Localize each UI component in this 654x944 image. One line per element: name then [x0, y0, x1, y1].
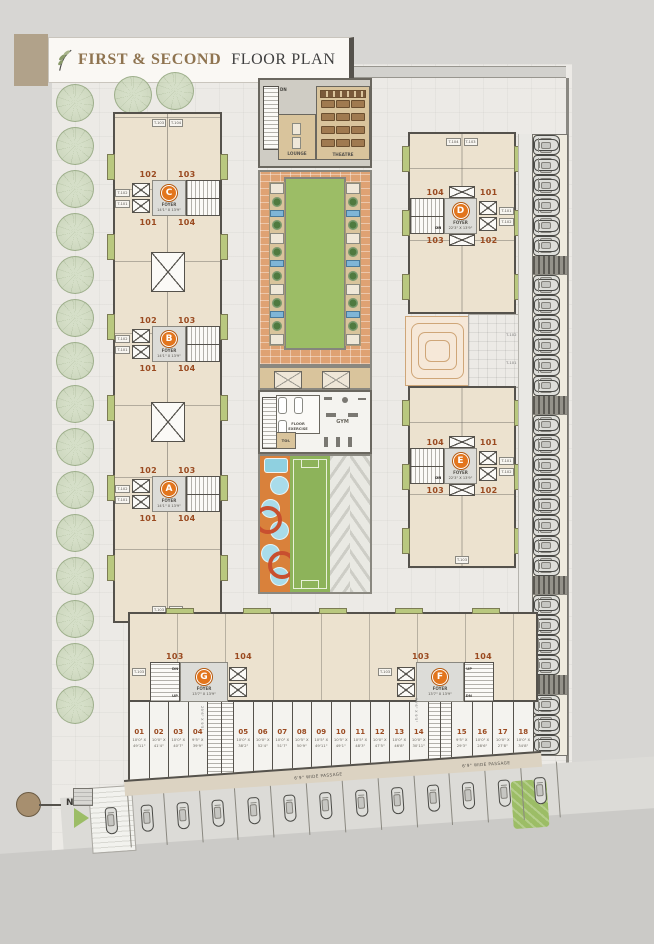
parking-stall — [533, 455, 560, 475]
tree-icon — [56, 514, 94, 552]
balcony — [402, 146, 410, 172]
tree-icon — [56, 385, 94, 423]
car-icon — [534, 279, 559, 291]
foyer: C FOYER 14'1" X 13'9" UP DN — [152, 180, 186, 216]
lift-column — [130, 476, 152, 512]
toilet-tag: T-103 — [378, 668, 392, 676]
foyer-label: FOYER — [162, 202, 177, 207]
shop-dimension: 9'5" X — [456, 737, 467, 742]
seat-icon — [351, 126, 365, 134]
toilet-tag: T-102 — [115, 485, 129, 493]
shop-dimension: 10'0" X — [256, 737, 270, 742]
floor-exercise-label: FLOOR EXERCISE — [277, 422, 319, 431]
toilet-room: TOI. — [276, 432, 296, 449]
lift-column — [477, 448, 499, 484]
tree-icon — [56, 600, 94, 638]
parking-stall — [378, 771, 418, 829]
planter-item — [346, 210, 360, 217]
shop-number: 06 — [258, 728, 268, 736]
terrace-tag: T-104 — [446, 138, 460, 146]
shop-dimension: 9'5" X — [192, 737, 203, 742]
unit-row: 101 104 — [115, 216, 220, 228]
gazebo-icon — [322, 371, 350, 389]
parking-stall — [533, 475, 560, 495]
parking-stall — [533, 236, 560, 256]
terrace-tags-top: T-104 T-103 — [410, 138, 514, 146]
planter-item — [348, 298, 358, 308]
parking-stall — [533, 135, 560, 155]
gym-area: GYM — [318, 395, 367, 449]
foyer-size: 22'3" X 13'9" — [449, 476, 473, 480]
core-middle: D FOYER 22'3" X 13'9" DN UP T-101 T-102 — [410, 198, 514, 234]
car-icon — [534, 719, 559, 731]
shop-number: 05 — [238, 728, 248, 736]
toilet-tag: T-101 — [115, 346, 129, 354]
lift-x-icon — [132, 199, 150, 213]
core-middle: E FOYER 22'3" X 13'9" DN UP T-101 T-102 — [410, 448, 514, 484]
shop-number: 03 — [173, 728, 183, 736]
balcony-column-right — [220, 154, 228, 581]
car-icon — [534, 199, 559, 211]
planter-item — [272, 247, 282, 257]
up-label: UP — [172, 693, 178, 698]
balcony-column-left — [402, 400, 410, 554]
parking-stall — [533, 556, 560, 576]
title-primary: FIRST & SECOND — [78, 51, 221, 69]
unit-row: 103 102 — [410, 234, 514, 246]
shop-dimension: 10'0" X — [171, 737, 185, 742]
tree-icon — [56, 557, 94, 595]
parking-stall — [164, 786, 204, 844]
toilet-tag: T-102 — [115, 189, 129, 197]
lift-x-icon — [229, 683, 247, 697]
parking-stall — [414, 769, 454, 827]
car-icon — [534, 439, 559, 451]
shop-number: 11 — [355, 728, 365, 736]
parking-stall — [533, 275, 560, 295]
balcony — [402, 274, 410, 300]
shop-dimension: 28'6" — [477, 743, 487, 748]
tree-icon — [56, 170, 94, 208]
planter-item — [270, 260, 284, 267]
lift-column — [477, 198, 499, 234]
unit-number: 101 — [139, 218, 157, 227]
shop-dimension: 10'0" X — [236, 737, 250, 742]
tower-badge: D — [453, 203, 469, 219]
unit-number: 104 — [426, 438, 444, 447]
car-icon — [534, 339, 559, 351]
balcony — [107, 314, 115, 340]
planter-item — [348, 271, 358, 281]
parking-stall — [533, 376, 560, 396]
parking-stall — [450, 766, 490, 824]
building-tower-E: 104 101 E FOYER 22'3" X 13'9" DN UP — [408, 386, 516, 568]
shop-number: 16 — [477, 728, 487, 736]
turf-lines — [293, 459, 327, 589]
planter-item — [346, 311, 360, 318]
parking-stall — [533, 435, 560, 455]
shop-dimension: 30'11" — [413, 743, 425, 748]
toilet-tag: T-101 — [499, 457, 513, 465]
building-tower-D: T-104 T-103 104 101 D FOYER 22'3" X 13'9… — [408, 132, 516, 314]
unit-number: 101 — [480, 188, 498, 197]
parking-stall — [521, 761, 561, 819]
trampoline-icon — [270, 476, 289, 495]
tower-badge: A — [161, 481, 177, 497]
seat-icon — [336, 113, 350, 121]
courtyard-ring — [418, 332, 456, 370]
car-icon — [390, 787, 404, 815]
unit-number: 103 — [166, 652, 184, 661]
parking-stall — [533, 355, 560, 375]
shop-dimension: 49'11" — [315, 743, 327, 748]
foyer-label: FOYER — [433, 686, 448, 691]
parking-stall — [271, 779, 311, 837]
balcony — [220, 154, 228, 180]
lift-column — [396, 662, 416, 702]
floor-exercise-room: FLOOR EXERCISE — [276, 395, 320, 434]
parking-stall — [92, 791, 132, 849]
gym-equipment-icon — [324, 397, 332, 400]
unit-row: 103 104 — [150, 650, 268, 662]
central-garden — [258, 170, 372, 366]
shop-dimension: 10'0" X — [412, 737, 426, 742]
unit-number: 104 — [178, 218, 196, 227]
parking-stall — [128, 789, 168, 847]
unit-row: 103 102 — [410, 484, 514, 496]
lawn — [284, 177, 346, 350]
passage-label: 6'9" WIDE PASSAGE — [462, 760, 511, 768]
toilet-tag: T-102 — [115, 335, 129, 343]
unit-number: 104 — [474, 652, 492, 661]
planter-item — [346, 233, 360, 244]
balcony — [107, 395, 115, 421]
lift-x-icon — [397, 667, 415, 681]
tower-core-G: 103 104 G FOYER 13'7" X 13'9" DN UP — [150, 650, 268, 702]
title-secondary: FLOOR PLAN — [231, 51, 335, 69]
balcony — [166, 608, 194, 614]
planter-item — [272, 220, 282, 230]
parking-stall — [533, 715, 560, 735]
shop-number: 01 — [134, 728, 144, 736]
car-icon — [534, 599, 559, 611]
parking-stall — [533, 155, 560, 175]
car-icon — [534, 139, 559, 151]
parking-stall — [533, 216, 560, 236]
parking-stall — [533, 195, 560, 215]
parking-stall — [533, 315, 560, 335]
terrace-tag: T-104 — [169, 119, 183, 127]
foyer-label: FOYER — [162, 348, 177, 353]
car-icon — [534, 560, 559, 572]
terrace-tags-bottom: T-103 — [410, 556, 514, 564]
tower-core-B: 102 103 T-102 T-101 B FOYER 14'1" X 13'9… — [115, 314, 220, 374]
toilet-tags: T-102 T-101 — [115, 476, 130, 512]
tree-icon — [56, 127, 94, 165]
planter-item — [270, 210, 284, 217]
shop-dimension: 29'3" — [457, 743, 467, 748]
unit-number: 102 — [139, 170, 157, 179]
lift-x-icon — [449, 436, 475, 448]
unit-number: 101 — [480, 438, 498, 447]
parking-stall — [485, 764, 525, 822]
core-middle: T-102 T-101 C FOYER 14'1" X 13'9" UP DN — [115, 180, 220, 216]
tree-icon — [56, 299, 94, 337]
planter-item — [270, 284, 284, 295]
seat-icon — [321, 139, 335, 147]
unit-number: 102 — [139, 466, 157, 475]
table-icon — [292, 137, 301, 149]
title-accent-block — [14, 34, 48, 86]
shop-number: 07 — [277, 728, 287, 736]
tower-core-A: 102 103 T-102 T-101 A FOYER 14'1" X 13'9… — [115, 464, 220, 524]
shop-dimension: 10'5" X — [353, 737, 367, 742]
tower-badge: F — [432, 669, 448, 685]
shop-number: 14 — [414, 728, 424, 736]
planter-column-left — [269, 182, 285, 346]
shop-dimension: 10'5" X — [334, 737, 348, 742]
lift-x-icon — [132, 495, 150, 509]
car-icon — [176, 802, 190, 830]
parking-stall — [533, 536, 560, 556]
seat-icon — [321, 126, 335, 134]
unit-row: 102 103 — [115, 314, 220, 326]
balcony — [220, 234, 228, 260]
unit-number: 104 — [178, 364, 196, 373]
goal-box-icon — [301, 580, 319, 589]
parking-stall — [533, 396, 567, 415]
terrace-tag: T-103 — [455, 556, 469, 564]
car-icon — [534, 380, 559, 392]
planter-item — [272, 321, 282, 331]
tree-icon — [56, 471, 94, 509]
tree-icon — [56, 643, 94, 681]
seat-icon — [351, 113, 365, 121]
car-icon — [534, 499, 559, 511]
balcony-row-top — [142, 608, 524, 614]
shop-number: 10 — [336, 728, 346, 736]
foyer-size: 14'1" X 13'9" — [157, 208, 181, 212]
parking-stall — [533, 495, 560, 515]
car-icon — [534, 459, 559, 471]
chevron-left — [330, 456, 350, 592]
shop-dimension: 38'2" — [238, 743, 248, 748]
shop-number: 13 — [394, 728, 404, 736]
unit-number: 103 — [178, 466, 196, 475]
unit-row: 104 101 — [410, 186, 514, 198]
courtyard-ring — [411, 323, 463, 378]
shop-number: 08 — [297, 728, 307, 736]
tree-icon — [156, 72, 194, 110]
lift-x-icon — [151, 402, 185, 442]
gym-equipment-icon — [348, 413, 358, 417]
car-icon — [212, 799, 226, 827]
shop-dimension: 46'8" — [394, 743, 404, 748]
gym-staircase — [262, 397, 277, 449]
core-middle: F FOYER 13'7" X 13'9" UP DN — [396, 662, 508, 702]
tree-icon — [56, 342, 94, 380]
lift-x-icon — [397, 683, 415, 697]
parking-stall — [307, 776, 347, 834]
lift-x-icon — [132, 183, 150, 197]
courtyard-ring — [425, 340, 449, 362]
planter-item — [272, 298, 282, 308]
lift-shaft-icon — [151, 402, 185, 442]
shop-dimension: 51'7" — [277, 743, 287, 748]
tree-icon — [56, 686, 94, 724]
shop-number: 09 — [316, 728, 326, 736]
pergola-deck — [258, 366, 372, 390]
lift-x-icon — [151, 252, 185, 292]
shop-dimension: 49'1" — [336, 743, 346, 748]
treadmill-icon — [336, 437, 340, 447]
balcony — [107, 555, 115, 581]
car-icon — [534, 159, 559, 171]
planter-item — [270, 233, 284, 244]
shop-dimension: 10'0" X — [516, 737, 530, 742]
foyer-label: FOYER — [453, 470, 468, 475]
shop-dimension: 10'0" X — [496, 737, 510, 742]
seat-icon — [336, 139, 350, 147]
core-middle: T-102 T-101 A FOYER 14'1" X 13'9" UP DN — [115, 476, 220, 512]
shop-dimension: 10'0" X — [152, 737, 166, 742]
balcony — [395, 608, 423, 614]
planter-item — [348, 247, 358, 257]
lounge-label: LOUNGE — [279, 151, 315, 156]
foyer-size: 14'1" X 13'9" — [157, 504, 181, 508]
core-middle: T-102 T-101 B FOYER 14'1" X 13'9" UP DN — [115, 326, 220, 362]
planter-item — [346, 334, 360, 345]
tower-core-F: 103 104 F FOYER 13'7" X 13'9" UP DN — [396, 650, 508, 702]
shop-dimension: 10'0" X — [392, 737, 406, 742]
car-icon — [462, 782, 476, 810]
gazebo-icon — [274, 371, 302, 389]
tree-icon — [56, 213, 94, 251]
toilet-tag: T-101 — [115, 496, 129, 504]
terrace-tag: T-102 — [505, 331, 518, 338]
car-icon — [534, 540, 559, 552]
table-icon — [292, 123, 301, 135]
unit-number: 102 — [480, 486, 498, 495]
unit-row: 101 104 — [115, 362, 220, 374]
foyer: F FOYER 13'7" X 13'9" UP DN — [416, 662, 464, 702]
dn-label: DN — [172, 666, 178, 671]
parking-stall — [533, 515, 560, 535]
gym-equipment-icon — [342, 397, 348, 403]
car-icon — [534, 240, 559, 252]
exercise-mat-icon — [294, 397, 303, 414]
car-icon — [534, 519, 559, 531]
title-box: FIRST & SECOND FLOOR PLAN — [48, 37, 354, 83]
toilet-tag: T-101 — [115, 200, 129, 208]
foyer: D FOYER 22'3" X 13'9" DN UP — [444, 198, 477, 234]
shop-dimension: 27'8" — [498, 743, 508, 748]
terrace-tags-top: T-103 T-104 — [115, 119, 220, 127]
core-middle: G FOYER 13'7" X 13'9" DN UP — [150, 662, 268, 702]
balcony — [319, 608, 347, 614]
lift-x-icon — [479, 451, 497, 465]
dn-label: DN — [280, 87, 287, 92]
tower-core-D: 104 101 D FOYER 22'3" X 13'9" DN UP — [410, 186, 514, 246]
car-icon — [534, 179, 559, 191]
tree-row-left — [56, 84, 94, 724]
balcony — [220, 475, 228, 501]
tree-icon — [56, 84, 94, 122]
car-icon — [283, 794, 297, 822]
balcony — [107, 234, 115, 260]
exercise-mat-icon — [278, 397, 287, 414]
walkway-chevron — [330, 456, 370, 592]
floor-plan-canvas: FIRST & SECOND FLOOR PLAN T-103 T-104 T-… — [0, 0, 654, 944]
lift-x-icon — [449, 186, 475, 198]
seat-icon — [351, 100, 365, 108]
parking-stall — [533, 335, 560, 355]
lift-x-icon — [479, 217, 497, 231]
car-icon — [355, 789, 369, 817]
shop-dimension: 39'9" — [193, 743, 203, 748]
tree-icon — [114, 76, 152, 114]
shop-dimension: 10'0" X — [475, 737, 489, 742]
unit-row: 103 104 — [396, 650, 508, 662]
shop-dimension: 52'4" — [258, 743, 268, 748]
balcony-column-left — [107, 154, 115, 581]
unit-number: 102 — [139, 316, 157, 325]
foyer: E FOYER 22'3" X 13'9" DN UP — [444, 448, 477, 484]
tower-badge: E — [453, 453, 469, 469]
lift-x-icon — [479, 201, 497, 215]
unit-number: 103 — [178, 170, 196, 179]
toilet-tag: T-103 — [132, 668, 146, 676]
planter-item — [348, 220, 358, 230]
balcony — [220, 555, 228, 581]
car-icon — [534, 319, 559, 331]
gym-block: DN FLOOR EXERCISE TOI. GYM — [258, 390, 372, 454]
planter-item — [272, 197, 282, 207]
lounge-room: LOUNGE — [278, 114, 316, 160]
unit-number: 103 — [178, 316, 196, 325]
gym-equipment-icon — [358, 398, 366, 400]
unit-row: 104 101 — [410, 436, 514, 448]
balcony — [472, 608, 500, 614]
staircase — [186, 180, 220, 216]
balcony — [402, 464, 410, 490]
clubhouse-staircase — [263, 86, 279, 150]
tower-core-E: 104 101 E FOYER 22'3" X 13'9" DN UP — [410, 436, 514, 496]
foyer-size: 13'7" X 13'9" — [192, 692, 216, 696]
planter-item — [270, 183, 284, 194]
chevron-right — [350, 456, 370, 592]
shop-dimension: 34'8" — [518, 743, 528, 748]
car-icon — [534, 419, 559, 431]
balcony — [220, 314, 228, 340]
shop-number: 02 — [154, 728, 164, 736]
shop-dimension: 50'9" — [297, 743, 307, 748]
balcony — [220, 395, 228, 421]
planter-column-right — [345, 182, 361, 346]
unit-number: 104 — [234, 652, 252, 661]
balcony — [107, 154, 115, 180]
car-icon — [140, 804, 154, 832]
car-icon — [104, 807, 118, 835]
foyer: A FOYER 14'1" X 13'9" UP DN — [152, 476, 186, 512]
unit-row: 101 104 — [115, 512, 220, 524]
seat-icon — [321, 100, 335, 108]
parking-stall — [533, 576, 567, 595]
passage-label: 6'9" WIDE PASSAGE — [294, 771, 343, 780]
terrace-tag: T-103 — [152, 119, 166, 127]
foyer-label: FOYER — [197, 686, 212, 691]
parking-stall — [199, 784, 239, 842]
